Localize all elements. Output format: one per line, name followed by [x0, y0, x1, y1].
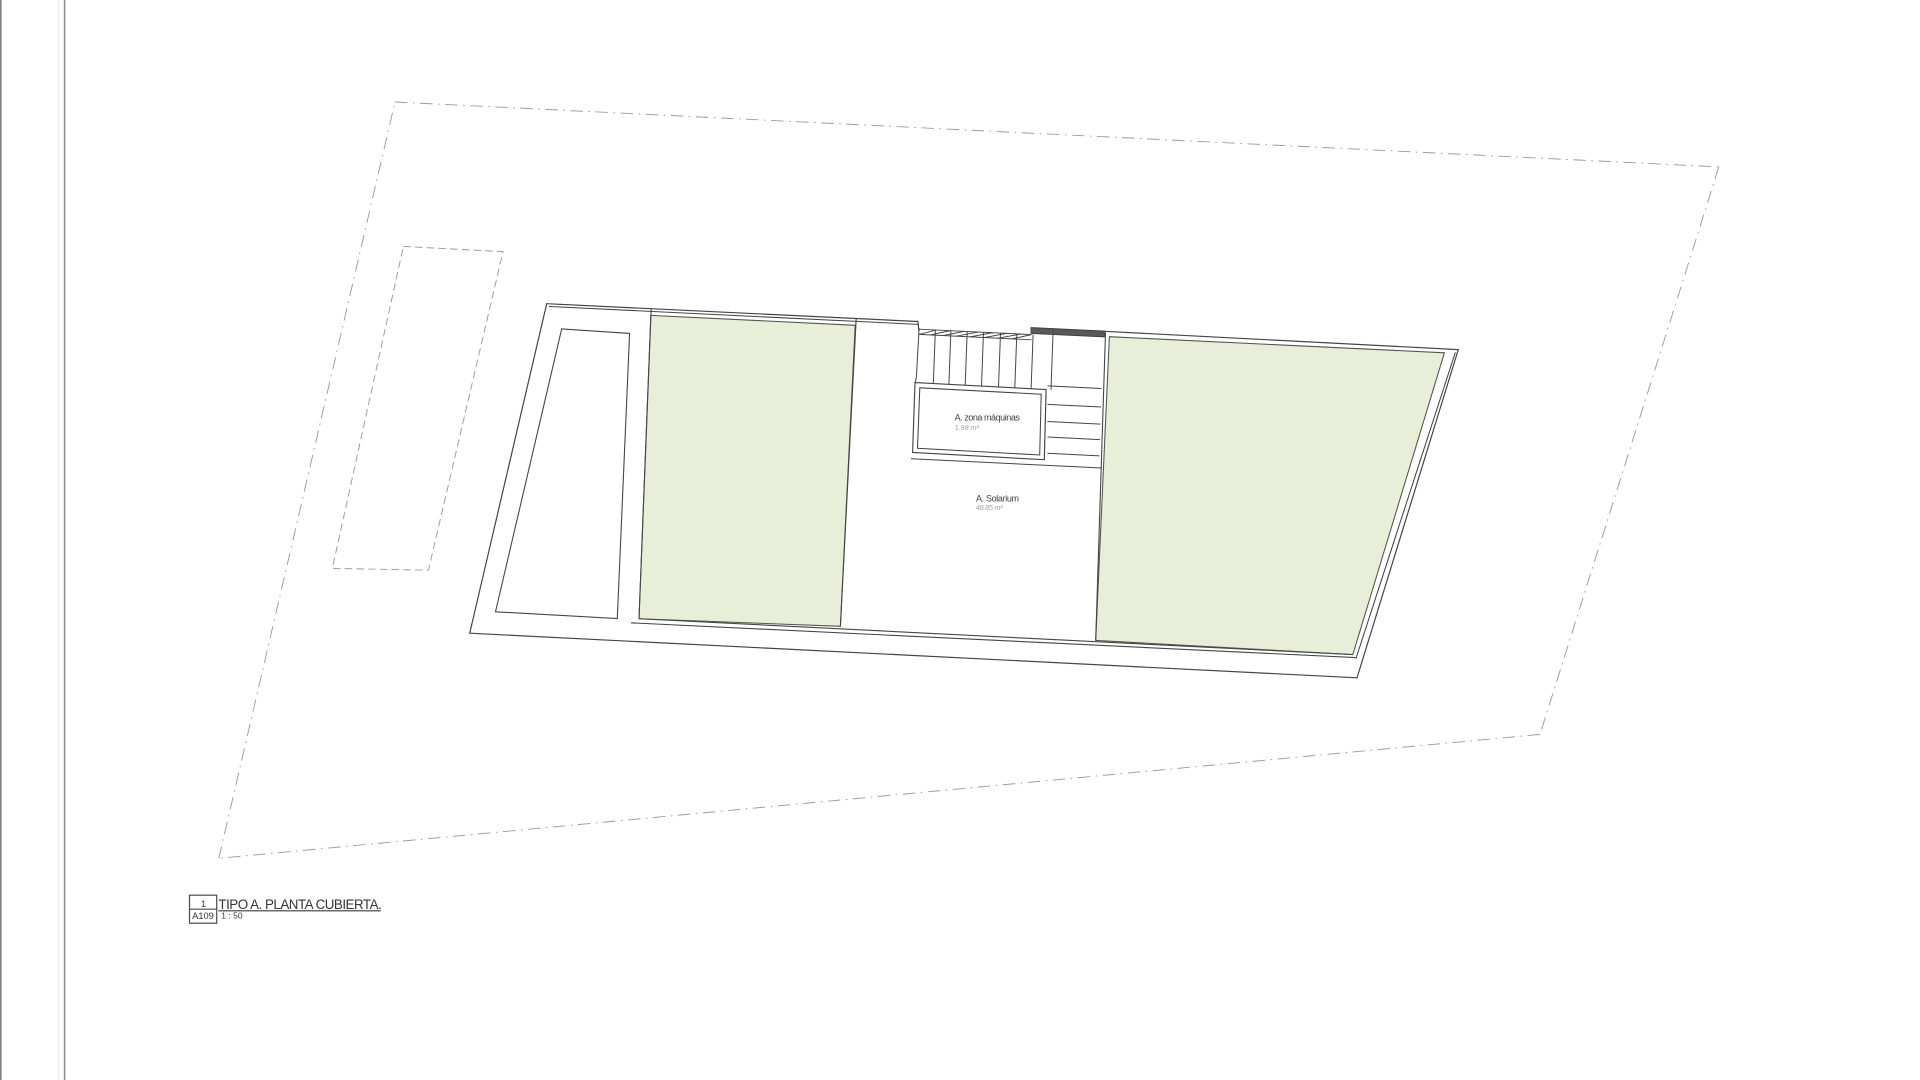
svg-text:A. Solarium: A. Solarium — [976, 494, 1019, 504]
svg-text:1: 1 — [201, 899, 206, 910]
svg-text:48.85 m²: 48.85 m² — [976, 503, 1004, 512]
svg-text:A. zona máquinas: A. zona máquinas — [955, 413, 1021, 423]
svg-text:1.98 m²: 1.98 m² — [955, 423, 980, 432]
svg-text:TIPO A. PLANTA CUBIERTA.: TIPO A. PLANTA CUBIERTA. — [218, 897, 381, 912]
svg-text:A109: A109 — [192, 911, 214, 921]
svg-text:1 : 50: 1 : 50 — [221, 911, 243, 921]
